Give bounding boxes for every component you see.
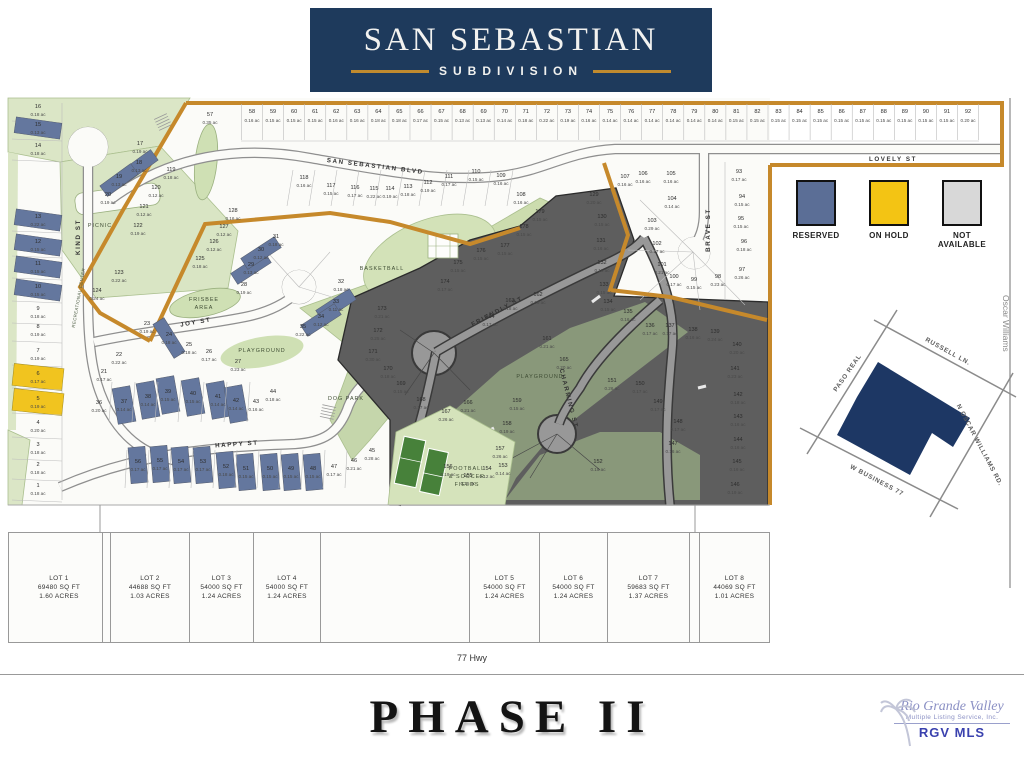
lot-acreage: 0.16 ac [296,183,312,188]
lot-acreage: 0.18 ac [30,314,46,319]
lot-acreage: 0.17 ac [152,466,168,471]
lot-label: 22 [116,352,122,358]
lot-strip-cell-lot-1: LOT 169480 SQ FT1.60 ACRES [16,533,103,642]
lot-acreage: 0.16 ac [617,182,633,187]
lot-acreage: 0.17 ac [670,427,686,432]
lot-label: 175 [453,260,462,266]
lot-acreage: 0.23 ac [230,367,246,372]
lot-acreage: 0.12 ac [313,322,329,327]
lot-label: 151 [607,378,616,384]
lot-label: 73 [565,109,571,115]
lot-acreage: 0.15 ac [30,292,46,297]
lot-strip-text: LOT 8 [725,574,744,583]
lot-strip-cell-lot-5: LOT 554000 SQ FT1.24 ACRES [470,533,540,642]
legend-label: RESERVED [792,231,839,240]
lot-acreage: 0.18 ac [380,374,396,379]
lot-label: 133 [599,282,608,288]
lot-label: 20 [105,192,111,198]
lot-strip-text: LOT 6 [564,574,583,583]
lot-strip-cell-lot-7: LOT 759683 SQ FT1.37 ACRES [608,533,690,642]
lot-label: 147 [668,441,677,447]
lot-label: 4 [36,420,39,426]
lot-strip-text: 44688 SQ FT [129,583,171,592]
lot-acreage: 0.18 ac [265,397,281,402]
lot-acreage: 0.15 ac [323,191,339,196]
legend-label: ON HOLD [869,231,909,240]
lot-label: 29 [248,262,254,268]
lot-strip-text: LOT 2 [140,574,159,583]
lot-acreage: 0.16 ac [225,216,241,221]
lot-label: 10 [35,284,41,290]
lot-label: 49 [288,466,294,472]
lot-acreage: 0.18 ac [518,118,534,123]
lot-strip-text: 1.24 ACRES [485,592,525,601]
lot-acreage: 0.13 ac [476,118,492,123]
lot-label: 63 [354,109,360,115]
lot-acreage: 0.14 ac [140,402,156,407]
lot-acreage: 0.15 ac [266,118,282,123]
lot-acreage: 0.16 ac [663,179,679,184]
lot-label: 135 [623,309,632,315]
lot-label: 142 [733,392,742,398]
lot-label: 100 [669,274,678,280]
lot-acreage: 0.11 ac [329,307,344,312]
lot-acreage: 0.15 ac [185,399,201,404]
lot-label: 140 [732,342,741,348]
lot-label: 113 [404,184,413,190]
lot-acreage: 0.18 ac [333,287,349,292]
lot-acreage: 0.18 ac [163,175,179,180]
lot-strip-text: LOT 4 [277,574,296,583]
lot-acreage: 0.18 ac [218,472,234,477]
lot-label: 118 [300,175,309,181]
lot-label: 95 [738,216,744,222]
lot-label: 60 [291,109,297,115]
location-inset-map [800,310,1016,517]
highway-label: 77 Hwy [412,653,532,663]
legend-item: NOT AVAILABLE [934,180,990,249]
lot-acreage: 0.19 ac [100,200,116,205]
lot-acreage: 0.18 ac [30,151,46,156]
lot-acreage: 0.17 ac [195,467,211,472]
lot-label: 80 [712,109,718,115]
lot-label: 16 [35,104,41,110]
lot-acreage: 0.17 ac [437,287,453,292]
amenity-label: FOOTBALL [449,466,485,472]
lot-acreage: 0.18 ac [181,350,197,355]
lot-acreage: 0.17 ac [347,193,363,198]
lot-acreage: 0.19 ac [382,194,398,199]
lot-acreage: 0.16 ac [350,118,366,123]
lot-acreage: 0.15 ac [686,285,702,290]
lot-label: 9 [36,306,39,312]
lot-label: 139 [710,329,719,335]
lot-acreage: 0.20 ac [961,118,977,123]
lot-strip-text: 69480 SQ FT [38,583,80,592]
lot-acreage: 0.15 ac [238,474,254,479]
lot-strip-spacer [103,533,111,642]
lot-acreage: 0.17 ac [632,389,648,394]
lot-label: 38 [145,394,151,400]
amenity-label: FRISBEE [189,297,219,303]
lot-label: 36 [96,400,102,406]
lot-acreage: 0.17 ac [666,282,682,287]
lot-label: 6 [36,371,39,377]
street-label: KIND ST [75,219,82,255]
lot-acreage: 0.15 ac [473,256,489,261]
lot-label: 79 [691,109,697,115]
lot-label: 75 [607,109,613,115]
lot-acreage: 0.14 ac [687,118,703,123]
lot-label: 114 [386,186,395,192]
lot-acreage: 0.12 ac [216,232,232,237]
lot-label: 127 [219,224,228,230]
lot-label: 125 [195,256,204,262]
lot-label: 33 [333,299,339,305]
oscar-williams-label: Oscar Williams [1001,295,1011,352]
lot-label: 13 [35,214,41,220]
lot-label: 21 [101,369,107,375]
lot-acreage: 0.14 ac [210,402,226,407]
lot-label: 53 [200,459,206,465]
lot-acreage: 0.15 ac [600,307,616,312]
lot-acreage: 0.25 ac [370,336,386,341]
lot-label: 89 [902,109,908,115]
lot-shape [128,446,148,483]
bottom-divider [0,674,1024,675]
inset-road-label: PASO REAL [832,353,863,393]
lot-label: 31 [273,234,279,240]
lot-acreage: 0.15 ac [771,118,787,123]
legend-item: RESERVED [788,180,844,249]
lot-label: 39 [165,389,171,395]
lot-label: 32 [338,279,344,285]
lot-label: 129 [589,192,598,198]
lot-label: 62 [333,109,339,115]
lot-strip-cell-lot-8: LOT 844069 SQ FT1.01 ACRES [700,533,770,642]
lot-label: 45 [369,448,375,454]
lot-label: 101 [657,262,666,268]
lot-acreage: 0.15 ac [897,118,913,123]
legend-item: ON HOLD [861,180,917,249]
lot-strip-text: 1.03 ACRES [130,592,170,601]
lot-label: 83 [775,109,781,115]
lot-acreage: 0.14 ac [624,118,640,123]
lot-acreage: 0.15 ac [596,290,612,295]
amenity-label: BASKETBALL [360,266,404,272]
lot-acreage: 0.23 ac [727,374,743,379]
lot-acreage: 0.29 ac [644,226,660,231]
lot-acreage: 0.26 ac [734,275,750,280]
lot-acreage: 0.12 ac [148,193,164,198]
lot-acreage: 0.19 ac [727,490,743,495]
lot-label: 52 [223,464,229,470]
lot-acreage: 0.15 ac [308,118,324,123]
lot-acreage: 0.16 ac [730,422,746,427]
lot-label: 108 [516,192,525,198]
lot-acreage: 0.20 ac [30,428,46,433]
lot-acreage: 0.18 ac [392,118,408,123]
lot-strip-text: 1.60 ACRES [39,592,79,601]
lot-label: 122 [133,223,142,229]
lot-acreage: 0.16 ac [581,118,597,123]
lot-strip-text: 54000 SQ FT [552,583,594,592]
lot-label: 50 [267,466,273,472]
lot-acreage: 0.19 ac [499,429,515,434]
lot-label: 158 [502,421,511,427]
lot-label: 137 [665,323,674,329]
lot-acreage: 0.21 ac [346,466,362,471]
lot-acreage: 0.26 ac [438,417,454,422]
lot-label: 42 [233,398,239,404]
lot-acreage: 0.21 ac [374,314,390,319]
lot-label: 65 [396,109,402,115]
lot-label: 11 [35,261,41,267]
lot-strip-spacer [690,533,700,642]
lot-acreage: 0.19 ac [30,332,46,337]
lot-shape [150,445,170,482]
lot-acreage: 0.12 ac [206,247,222,252]
lot-strip-text: 44069 SQ FT [713,583,755,592]
lot-strip-text: LOT 5 [495,574,514,583]
lot-label: 64 [375,109,381,115]
lot-label: 96 [741,239,747,245]
lot-label: 61 [312,109,318,115]
lot-acreage: 0.15 ac [594,222,610,227]
lot-acreage: 0.22 ac [111,360,127,365]
lot-label: 117 [327,183,336,189]
lot-label: 41 [215,394,221,400]
palm-tree-icon [880,696,928,748]
lot-label: 167 [441,409,450,415]
lot-label: 48 [310,466,316,472]
lot-strip-cell-lot-4: LOT 454000 SQ FT1.24 ACRES [254,533,321,642]
lot-label: 178 [519,224,528,230]
amenity-label: PLAYGROUND [516,374,563,380]
lot-shape [216,451,236,488]
lot-label: 70 [502,109,508,115]
lot-label: 56 [135,459,141,465]
lot-label: 143 [733,414,742,420]
lot-label: 123 [114,270,123,276]
lot-label: 72 [544,109,550,115]
lot-label: 116 [351,185,360,191]
lot-label: 68 [459,109,465,115]
lot-acreage: 0.17 ac [662,331,678,336]
lot-label: 74 [586,109,592,115]
lot-acreage: 0.21 ac [539,344,555,349]
legend-swatch [796,180,836,226]
lot-label: 23 [144,321,150,327]
lot-label: 8 [36,324,39,330]
lot-label: 47 [331,464,337,470]
lot-acreage: 0.15 ac [434,118,450,123]
lot-label: 166 [463,400,472,406]
lot-label: 130 [597,214,606,220]
lot-strip-text: LOT 7 [639,574,658,583]
lot-label: 87 [860,109,866,115]
lot-acreage: 0.16 ac [729,467,745,472]
lot-label: 26 [206,349,212,355]
lot-shape [281,453,301,490]
lot-acreage: 0.24 ac [89,296,105,301]
lot-label: 7 [36,348,39,354]
lot-acreage: 0.28 ac [364,456,380,461]
lot-label: 120 [151,185,160,191]
lot-label: 172 [373,328,382,334]
lot-acreage: 0.19 ac [130,231,146,236]
lot-strip-text: LOT 1 [49,574,68,583]
lot-acreage: 0.14 ac [116,407,132,412]
lot-label: 40 [190,391,196,397]
amenity-label: PLAYGROUND [238,348,285,354]
lot-label: 132 [597,260,606,266]
lot-label: 145 [732,459,741,465]
lot-acreage: 0.17 ac [413,405,429,410]
lot-acreage: 0.19 ac [30,404,46,409]
lot-acreage: 0.26 ac [492,454,508,459]
legend-swatch [942,180,982,226]
lot-acreage: 0.22 ac [295,332,311,337]
lot-acreage: 0.17 ac [413,118,429,123]
lot-acreage: 0.14 ac [497,118,513,123]
lot-label: 25 [186,342,192,348]
lot-acreage: 0.13 ac [243,270,259,275]
amenity-label: AREA [195,305,214,311]
lot-label: 171 [368,349,377,355]
lot-acreage: 0.17 ac [731,177,747,182]
lot-strip-text: 1.01 ACRES [715,592,755,601]
lot-strip-text: 54000 SQ FT [200,583,242,592]
lot-acreage: 0.22 ac [111,278,127,283]
lot-label: 159 [512,398,521,404]
lot-label: 84 [796,109,802,115]
street-label: BRAVE ST [705,208,712,252]
lot-label: 148 [673,419,682,425]
lot-acreage: 0.20 ac [729,350,745,355]
lot-acreage: 0.20 ac [91,408,107,413]
lot-label: 46 [351,458,357,464]
lot-label: 90 [923,109,929,115]
lot-strip-text: 54000 SQ FT [483,583,525,592]
lot-acreage: 0.26 ac [604,386,620,391]
lot-acreage: 0.15 ac [468,177,484,182]
lot-label: 44 [270,389,276,395]
lot-acreage: 0.15 ac [30,247,46,252]
lot-acreage: 0.15 ac [497,251,513,256]
lot-acreage: 0.15 ac [30,269,46,274]
lot-label: 3 [36,442,39,448]
lot-acreage: 0.17 ac [649,249,665,254]
lot-acreage: 0.16 ac [685,335,701,340]
lot-label: 58 [249,109,255,115]
lot-acreage: 0.16 ac [244,118,260,123]
lot-shape [193,446,213,483]
lot-strip-cell-lot-2: LOT 244688 SQ FT1.03 ACRES [111,533,190,642]
mls-logo: Rio Grande Valley Multiple Listing Servi… [884,700,1020,740]
lot-shape [236,453,256,490]
lot-label: 66 [417,109,423,115]
lot-acreage: 0.13 ac [30,130,46,135]
phase-title: PHASE II [0,690,1024,744]
commercial-lot-strip: LOT 169480 SQ FT1.60 ACRESLOT 244688 SQ … [8,532,770,643]
lot-acreage: 0.17 ac [130,467,146,472]
lot-acreage: 0.14 ac [666,118,682,123]
amenity-label: FIELDS [455,482,480,488]
lot-shape [171,446,191,483]
lot-acreage: 0.17 ac [326,472,342,477]
lot-acreage: 0.18 ac [192,264,208,269]
lot-label: 34 [318,314,324,320]
lot-label: 69 [481,109,487,115]
lot-label: 91 [944,109,950,115]
lot-label: 14 [35,143,41,149]
lot-label: 179 [535,209,544,215]
lot-acreage: 0.15 ac [733,224,749,229]
lot-label: 131 [596,238,605,244]
lot-label: 124 [92,288,101,294]
lot-acreage: 0.19 ac [420,188,436,193]
amenity-label: & SOCCER [449,474,485,480]
lot-label: 18 [136,160,142,166]
lot-acreage: 0.15 ac [834,118,850,123]
lot-acreage: 0.17 ac [642,331,658,336]
lot-strip-spacer [321,533,470,642]
lot-label: 55 [157,458,163,464]
lot-strip-text: 1.24 ACRES [202,592,242,601]
lot-strip-text: 1.24 ACRES [267,592,307,601]
lot-label: 134 [603,299,612,305]
lot-acreage: 0.15 ac [509,406,525,411]
lot-label: 104 [667,196,676,202]
lot-label: 2 [36,462,39,468]
lot-acreage: 0.15 ac [532,217,548,222]
lot-acreage: 0.15 ac [918,118,934,123]
lot-label: 98 [715,274,721,280]
lot-label: 59 [270,109,276,115]
inset-road-label: W BUSINESS 77 [849,464,905,498]
lot-label: 105 [666,171,675,177]
lot-acreage: 0.14 ac [708,118,724,123]
lot-label: 177 [500,243,509,249]
lot-acreage: 0.18 ac [30,450,46,455]
lot-label: 106 [638,171,647,177]
lot-acreage: 0.12 ac [136,212,152,217]
lot-label: 126 [209,239,218,245]
lot-label: 176 [476,248,485,254]
lot-label: 121 [139,204,148,210]
lot-label: 141 [730,366,739,372]
lot-label: 88 [881,109,887,115]
lot-acreage: 0.20 ac [586,200,602,205]
lot-label: 112 [424,180,433,186]
lot-label: 30 [258,247,264,253]
lot-label: 92 [965,109,971,115]
lot-acreage: 0.14 ac [495,471,511,476]
lot-acreage: 0.15 ac [287,118,303,123]
lot-acreage: 0.15 ac [750,118,766,123]
amenity-label: DOG PARK [328,396,364,402]
lot-acreage: 0.14 ac [228,406,244,411]
lot-label: 173 [377,306,386,312]
lot-label: 5 [36,396,39,402]
lot-acreage: 0.18 ac [371,118,387,123]
lot-strip-text: 59683 SQ FT [627,583,669,592]
lot-label: 150 [635,381,644,387]
lot-label: 24 [166,332,172,338]
lot-strip-text: 1.24 ACRES [554,592,594,601]
lot-acreage: 0.13 ac [455,118,471,123]
